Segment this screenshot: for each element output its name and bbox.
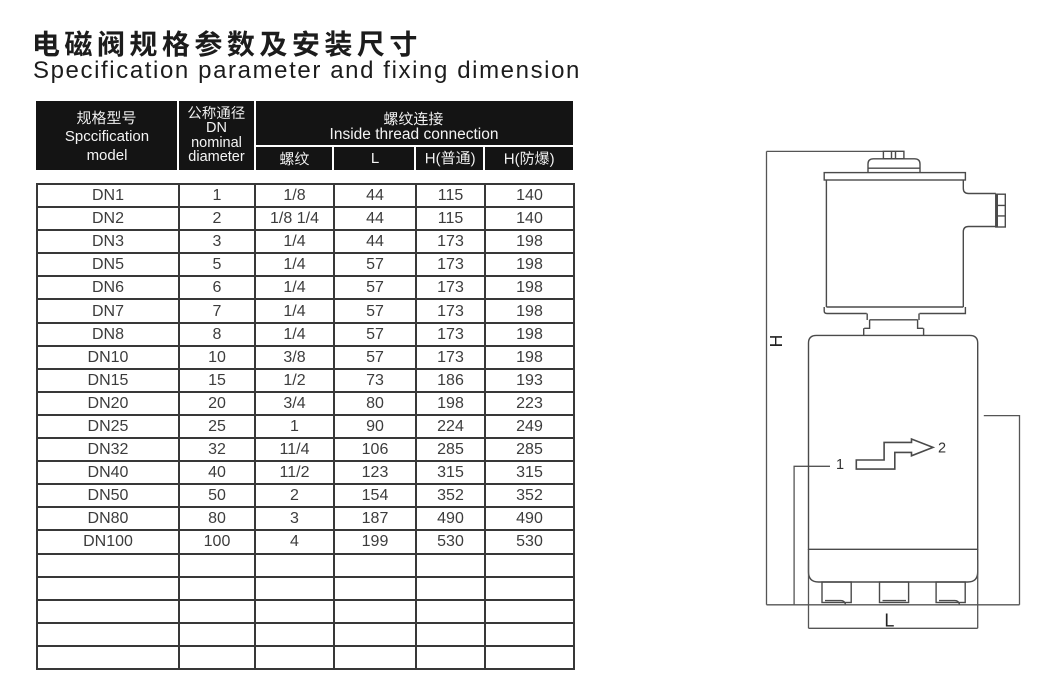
svg-text:L: L xyxy=(884,610,894,630)
svg-text:2: 2 xyxy=(938,441,946,457)
svg-text:H: H xyxy=(766,335,786,348)
svg-text:1: 1 xyxy=(836,457,844,473)
